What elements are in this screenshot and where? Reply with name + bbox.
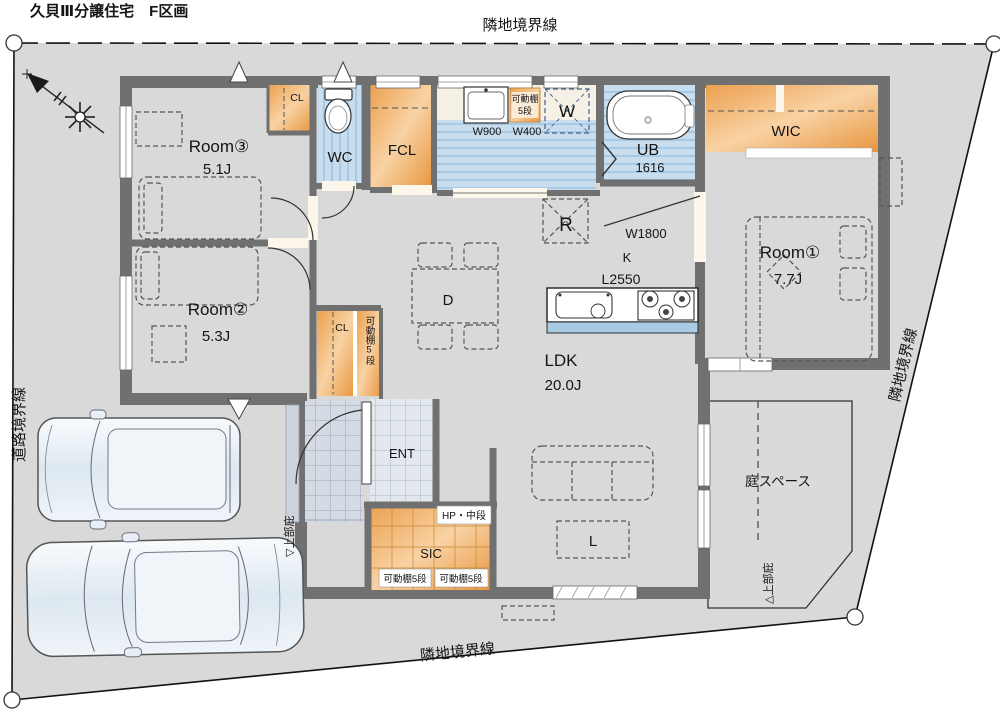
wic-floor <box>706 85 878 152</box>
boundary-marker <box>4 692 20 708</box>
car-2 <box>26 529 305 659</box>
sic-shelf-left-label: 可動棚5段 <box>383 573 427 585</box>
washer-label: W <box>559 102 575 121</box>
hp-label: HP・中段 <box>442 509 486 522</box>
plan-title: 久貝Ⅲ分譲住宅 F区画 <box>30 2 188 20</box>
ldk-area: 20.0J <box>545 377 582 394</box>
car-mirror <box>124 648 141 657</box>
boundary-marker <box>6 35 22 51</box>
ldk-label: LDK <box>544 351 578 370</box>
room3-label: Room③ <box>189 137 250 156</box>
fridge-label: R <box>559 215 573 236</box>
kitchen-label: K <box>623 250 632 265</box>
living-table-label: L <box>589 533 597 550</box>
porch-floor <box>305 401 364 522</box>
room2-label: Room② <box>188 300 249 319</box>
ub-size: 1616 <box>636 160 665 175</box>
wic-stub <box>776 85 784 112</box>
wic-shelf <box>746 148 872 158</box>
kitchen-opening-width: W1800 <box>625 226 666 241</box>
vanity-width-label: W900 <box>473 126 502 138</box>
kitchen-counter <box>547 288 698 333</box>
shelf-box-label-2: 5段 <box>518 105 532 116</box>
toilet-icon <box>325 89 352 133</box>
ub-label: UB <box>637 142 659 159</box>
wic-label: WIC <box>771 123 800 140</box>
vanity-icon <box>464 87 508 123</box>
stove-icon <box>638 291 694 320</box>
sic-label: SIC <box>420 546 442 561</box>
bathtub-icon <box>607 91 694 139</box>
room2-area: 5.3J <box>202 328 230 345</box>
sic-shelf-right-label: 可動棚5段 <box>439 573 483 585</box>
kitchen-counter-length: L2550 <box>602 271 641 287</box>
dining-label: D <box>443 292 454 309</box>
boundary-label-top: 隣地境界線 <box>482 16 557 34</box>
car-mirror <box>90 410 106 419</box>
car-1 <box>38 410 240 529</box>
wc-label: WC <box>328 149 353 166</box>
cl-upper-label: CL <box>290 92 304 104</box>
canopy-porch-label: ▽上部庇 <box>282 516 296 557</box>
car-mirror <box>90 520 106 529</box>
fcl-floor <box>370 85 432 187</box>
floor-plan: 久貝Ⅲ分譲住宅 F区画 隣地境界線 隣地境界線 隣地境界線 道路境界線 Room… <box>0 0 1000 709</box>
shelf-width-label: W400 <box>513 126 542 138</box>
floor-plan-canvas: 久貝Ⅲ分譲住宅 F区画 隣地境界線 隣地境界線 隣地境界線 道路境界線 Room… <box>0 0 1000 709</box>
room1-label: Room① <box>760 243 821 262</box>
shelf-strip-gap <box>353 311 357 396</box>
garden-label: 庭スペース <box>745 473 811 489</box>
boundary-label-left: 道路境界線 <box>10 387 28 462</box>
garden-outline <box>708 401 852 608</box>
shelf-box-label-1: 可動棚 <box>511 93 538 104</box>
shelf-vertical-label: 可動棚5段 <box>364 316 376 366</box>
fcl-label: FCL <box>388 142 416 159</box>
kitchen-sink-icon <box>556 292 612 318</box>
garden-space <box>708 401 852 608</box>
cl-lower-label: CL <box>335 322 349 334</box>
room1-area: 7.7J <box>774 271 802 288</box>
room3-area: 5.1J <box>203 161 231 178</box>
boundary-marker <box>847 609 863 625</box>
car-mirror <box>122 533 139 542</box>
boundary-line-top <box>14 43 994 44</box>
ent-label: ENT <box>389 446 415 461</box>
boundary-marker <box>986 36 1000 52</box>
canopy-garden-label: △上部庇 <box>761 563 775 604</box>
porch-step <box>286 405 299 522</box>
